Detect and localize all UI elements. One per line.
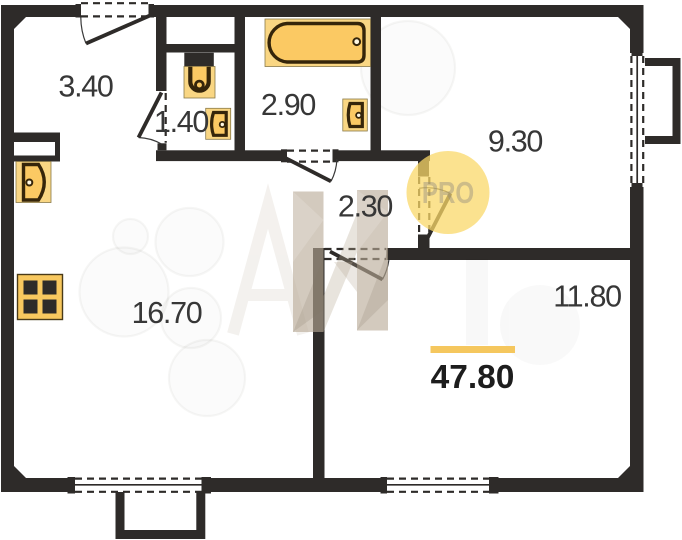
svg-text:PRO: PRO <box>422 175 474 210</box>
svg-text:47.80: 47.80 <box>431 359 515 396</box>
svg-text:2.90: 2.90 <box>261 88 315 122</box>
svg-text:2.30: 2.30 <box>338 190 392 224</box>
svg-text:1.40: 1.40 <box>154 105 208 139</box>
svg-text:9.30: 9.30 <box>488 125 542 159</box>
svg-text:11.80: 11.80 <box>553 280 621 314</box>
svg-text:16.70: 16.70 <box>132 296 202 330</box>
svg-text:3.40: 3.40 <box>58 70 112 104</box>
